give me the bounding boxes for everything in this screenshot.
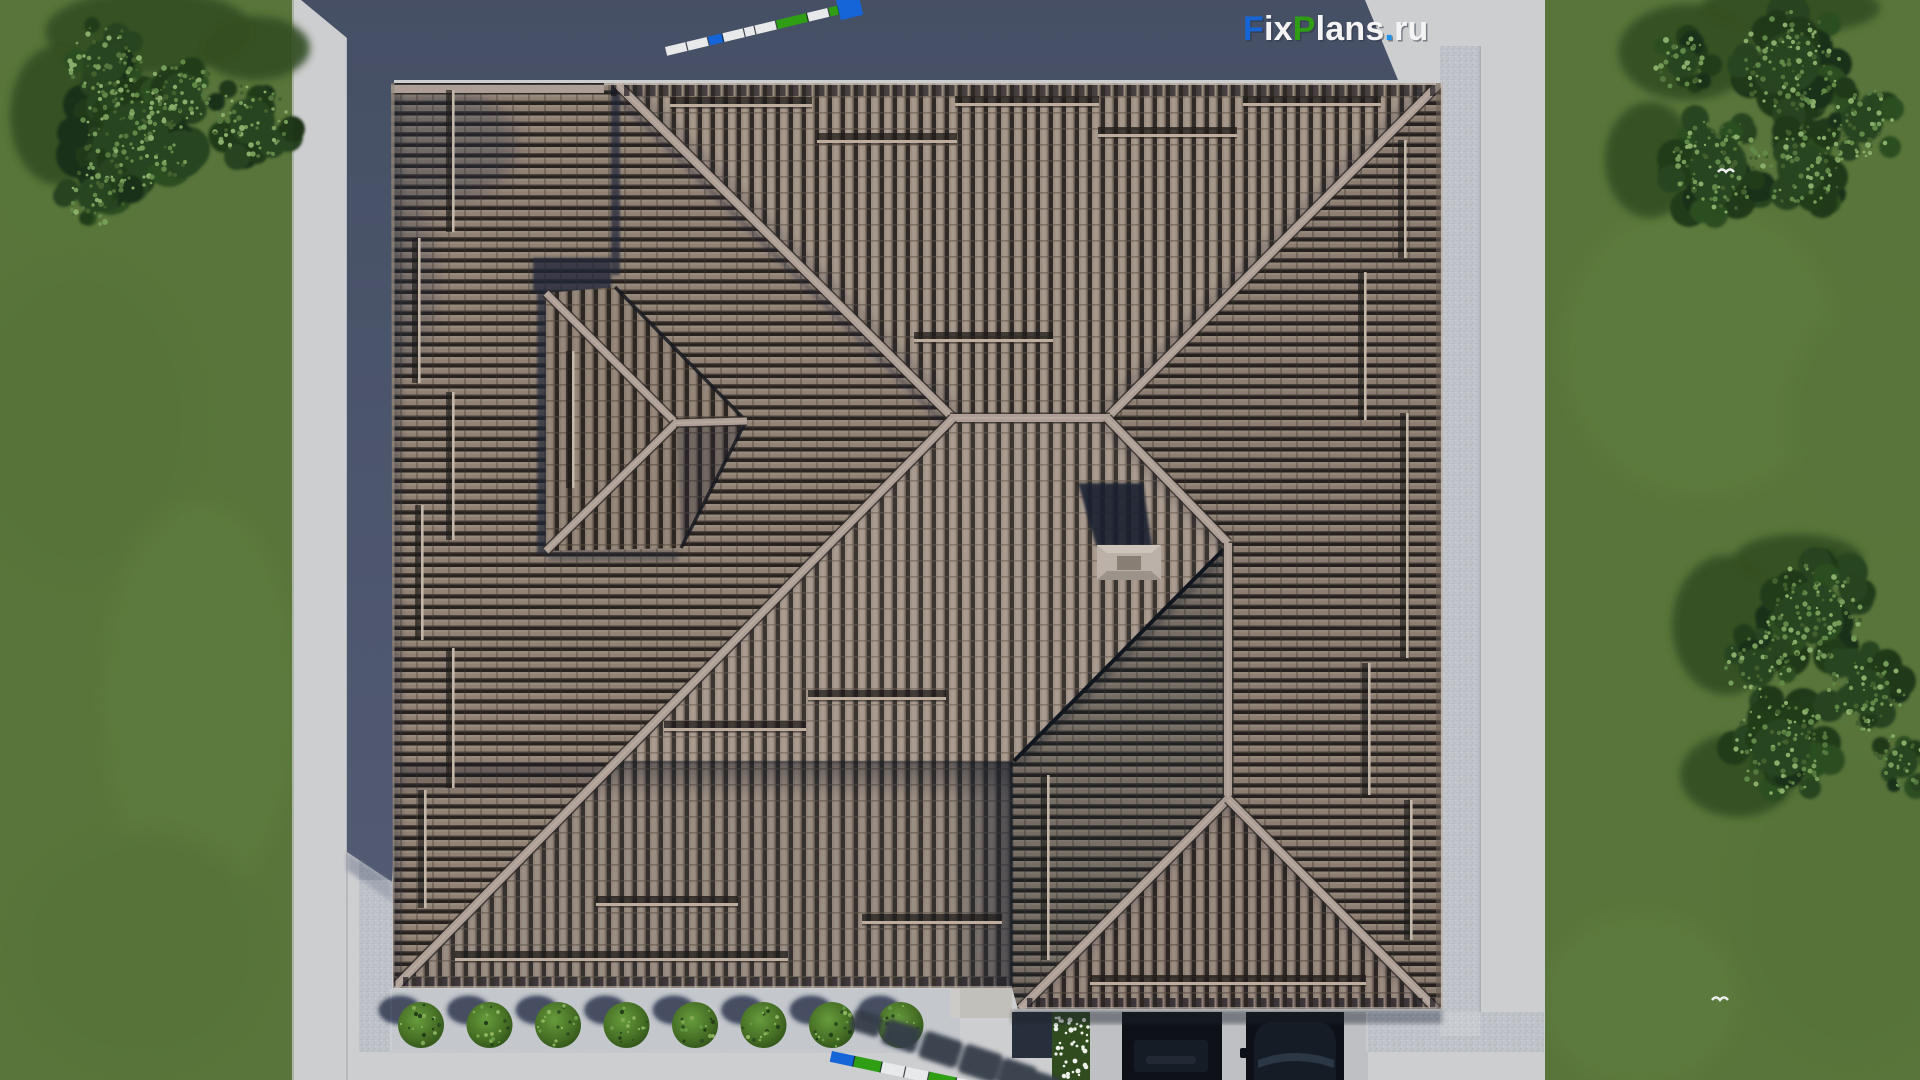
svg-text:FixPlans.ru: FixPlans.ru	[1243, 10, 1429, 48]
